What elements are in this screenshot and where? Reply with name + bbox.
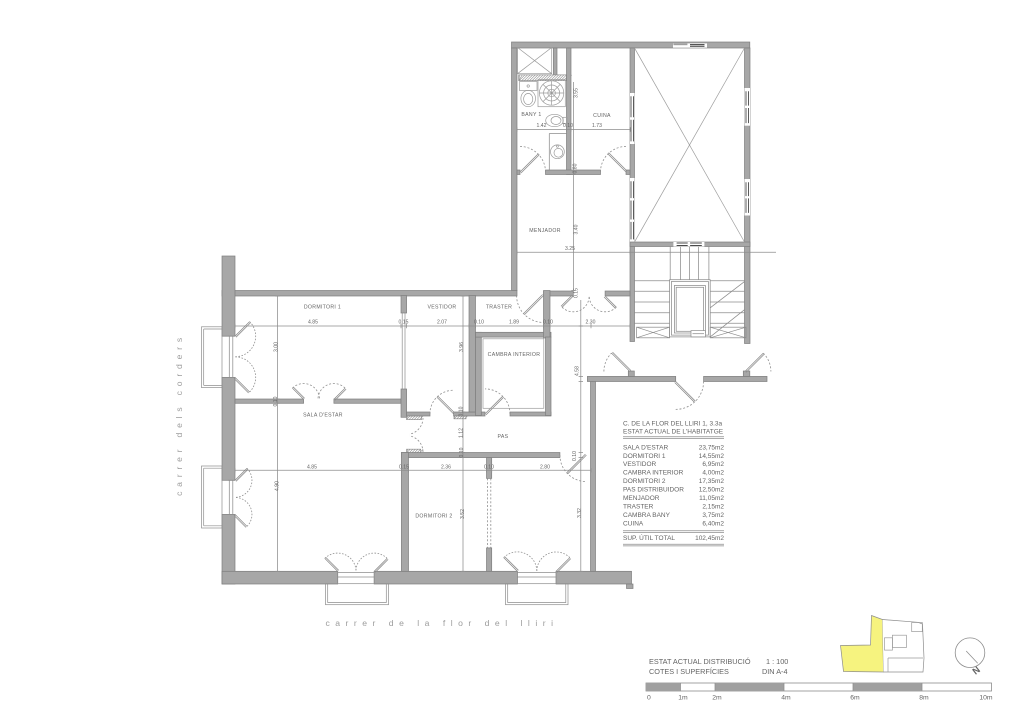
svg-text:SUP. ÚTIL TOTAL: SUP. ÚTIL TOTAL [623,533,675,542]
svg-text:CUINA: CUINA [623,520,644,527]
svg-text:C. DE LA FLOR DEL LLIRI 1, 3.3: C. DE LA FLOR DEL LLIRI 1, 3.3a [623,421,722,428]
svg-text:CUINA: CUINA [593,113,611,119]
svg-text:DIN A-4: DIN A-4 [762,667,788,676]
svg-text:0.10: 0.10 [273,396,279,406]
svg-text:3,75m2: 3,75m2 [702,512,724,519]
svg-text:14,55m2: 14,55m2 [699,453,725,460]
svg-text:1.73: 1.73 [592,123,602,129]
svg-text:ESTAT ACTUAL DE L'HABITATGE: ESTAT ACTUAL DE L'HABITATGE [623,429,724,436]
svg-text:2,15m2: 2,15m2 [702,503,724,510]
svg-text:2.07: 2.07 [437,320,447,326]
svg-text:DORMITORI 2: DORMITORI 2 [623,478,666,485]
svg-text:4m: 4m [781,694,791,701]
svg-text:4.85: 4.85 [307,465,317,471]
svg-text:3.00: 3.00 [274,342,280,352]
svg-text:DORMITORI 1: DORMITORI 1 [304,305,341,311]
svg-text:1 : 100: 1 : 100 [766,657,788,666]
svg-text:0.80: 0.80 [573,163,579,173]
svg-text:0.10: 0.10 [572,451,578,461]
svg-text:CAMBRA BANY: CAMBRA BANY [623,512,671,519]
svg-text:8m: 8m [919,694,929,701]
svg-text:PAS: PAS [498,434,509,440]
svg-text:4.85: 4.85 [308,320,318,326]
svg-text:2m: 2m [712,694,722,701]
svg-text:6,95m2: 6,95m2 [702,461,724,468]
svg-text:3.25: 3.25 [565,246,575,252]
svg-text:BANY 1: BANY 1 [521,112,541,118]
svg-text:0.15: 0.15 [574,288,580,298]
svg-text:SALA D'ESTAR: SALA D'ESTAR [303,413,343,419]
svg-text:DORMITORI 1: DORMITORI 1 [623,453,666,460]
svg-text:COTES I SUPERFÍCIES: COTES I SUPERFÍCIES [649,667,729,676]
svg-text:3.55: 3.55 [574,88,580,98]
svg-text:VESTIDOR: VESTIDOR [623,461,657,468]
svg-text:23,75m2: 23,75m2 [699,444,725,451]
svg-text:TRASTER: TRASTER [623,503,654,510]
svg-text:17,35m2: 17,35m2 [699,478,725,485]
svg-text:CAMBRA INTERIOR: CAMBRA INTERIOR [623,470,684,477]
svg-text:TRASTER: TRASTER [486,305,512,311]
svg-text:0.15: 0.15 [399,320,409,326]
svg-text:2.36: 2.36 [441,465,451,471]
svg-text:3.52: 3.52 [460,509,466,519]
svg-text:12,50m2: 12,50m2 [699,487,725,494]
svg-text:0.15: 0.15 [399,465,409,471]
svg-text:3.32: 3.32 [577,508,583,518]
svg-text:11,05m2: 11,05m2 [699,495,724,502]
svg-text:3.96: 3.96 [459,342,465,352]
svg-text:4,00m2: 4,00m2 [702,470,724,477]
svg-text:1.42: 1.42 [537,123,547,129]
svg-text:0: 0 [647,694,651,701]
svg-text:SALA D'ESTAR: SALA D'ESTAR [623,444,668,451]
svg-text:2.80: 2.80 [540,465,550,471]
svg-text:0.10: 0.10 [484,465,494,471]
svg-text:CAMBRA INTERIOR: CAMBRA INTERIOR [488,352,541,358]
svg-text:DORMITORI 2: DORMITORI 2 [415,514,452,520]
svg-text:carrer dels corders: carrer dels corders [174,333,184,496]
svg-text:1.89: 1.89 [509,320,519,326]
svg-text:10m: 10m [979,694,993,701]
svg-text:3.40: 3.40 [574,224,580,234]
svg-text:VESTIDOR: VESTIDOR [428,305,457,311]
svg-text:1m: 1m [678,694,688,701]
svg-text:MENJADOR: MENJADOR [529,228,561,234]
svg-text:1.12: 1.12 [459,428,465,438]
svg-text:ESTAT ACTUAL DISTRIBUCIÓ: ESTAT ACTUAL DISTRIBUCIÓ [649,657,751,666]
svg-text:PAS DISTRIBUIDOR: PAS DISTRIBUIDOR [623,487,684,494]
svg-text:6,40m2: 6,40m2 [702,520,724,527]
svg-text:MENJADOR: MENJADOR [623,495,660,502]
svg-text:2.30: 2.30 [586,320,596,326]
svg-text:0.10: 0.10 [459,406,465,416]
svg-text:102,45m2: 102,45m2 [695,535,724,542]
svg-text:4.58: 4.58 [575,366,581,376]
svg-text:6m: 6m [850,694,860,701]
svg-text:0.10: 0.10 [543,320,553,326]
svg-text:0.10: 0.10 [563,123,573,129]
svg-text:carrer de la flor del lliri: carrer de la flor del lliri [325,618,558,628]
svg-text:4.90: 4.90 [275,481,281,491]
